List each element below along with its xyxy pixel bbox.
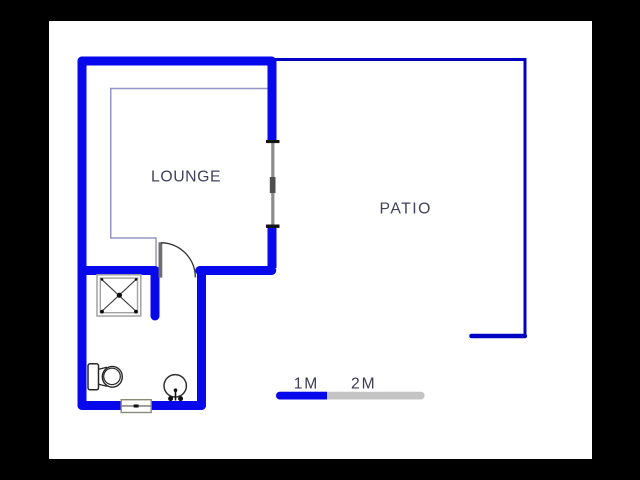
svg-text:2M: 2M <box>351 375 376 392</box>
svg-text:LOUNGE: LOUNGE <box>151 169 221 186</box>
svg-text:1M: 1M <box>294 375 319 392</box>
svg-text:PATIO: PATIO <box>380 201 432 218</box>
